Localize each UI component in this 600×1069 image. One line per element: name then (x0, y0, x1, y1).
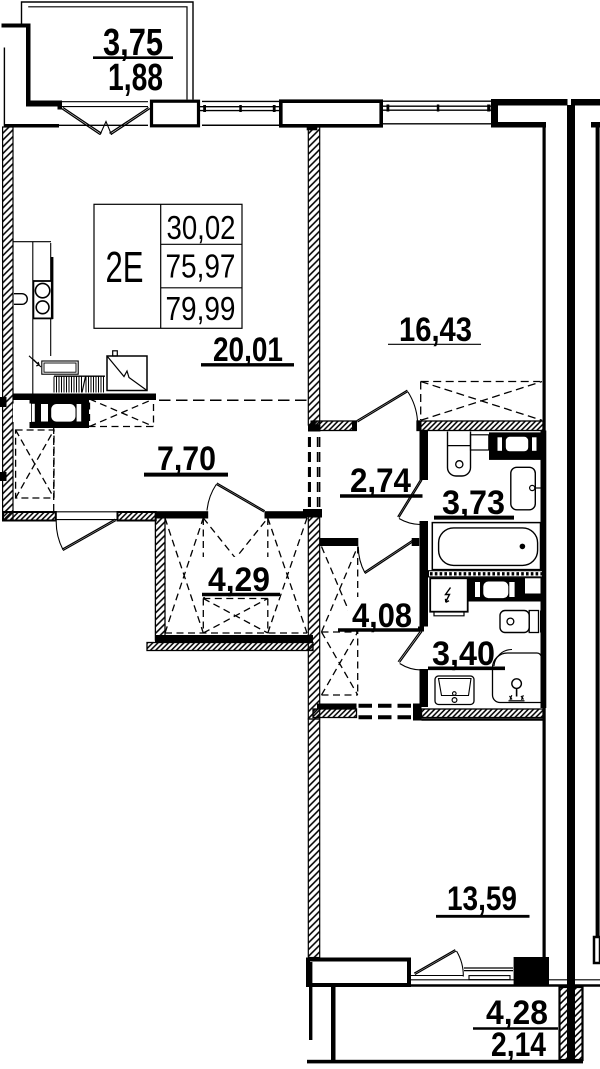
svg-text:2,14: 2,14 (491, 1026, 546, 1064)
svg-text:75,97: 75,97 (166, 248, 236, 285)
svg-text:1,88: 1,88 (108, 57, 163, 99)
svg-text:7,70: 7,70 (157, 440, 216, 478)
svg-text:16,43: 16,43 (399, 311, 472, 349)
svg-text:30,02: 30,02 (167, 209, 236, 246)
svg-text:13,59: 13,59 (447, 880, 517, 918)
svg-text:2E: 2E (106, 243, 144, 292)
svg-text:79,99: 79,99 (166, 290, 236, 327)
